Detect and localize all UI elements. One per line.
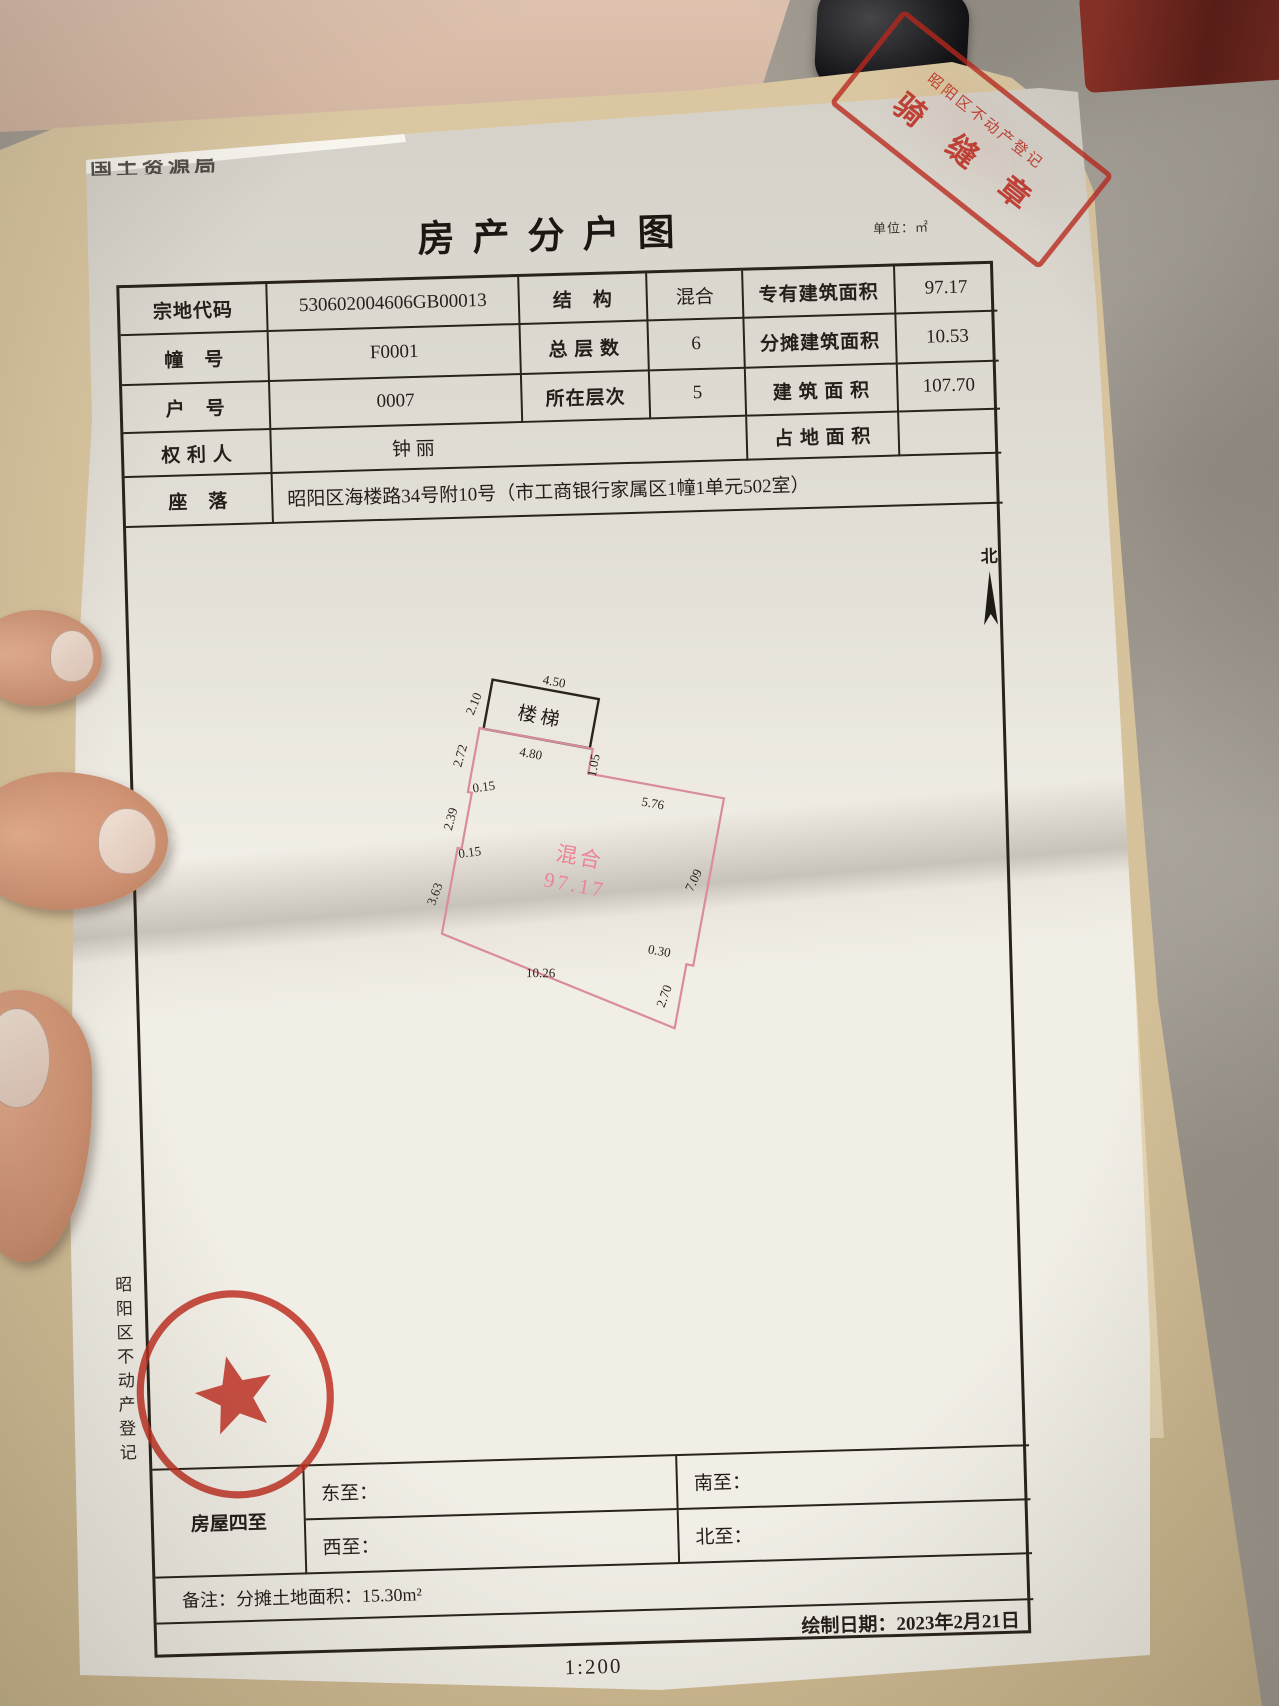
dim-jog-lower: 0.15 — [457, 843, 482, 861]
star-icon — [188, 1347, 281, 1438]
dim-right-side: 7.09 — [682, 867, 705, 894]
value-floor-level: 5 — [650, 369, 747, 420]
label-structure: 结 构 — [519, 273, 648, 325]
north-arrow-icon — [980, 571, 1002, 630]
label-land-area: 占 地 面 积 — [747, 412, 900, 460]
photo-of-property-document: 国土资源局 房产分户图 单位：㎡ 宗地代码 530602004606GB0001… — [0, 0, 1279, 1706]
label-building-area: 建 筑 面 积 — [746, 364, 899, 416]
unit-floor-plan: 楼梯 4.50 2.10 4.80 1.05 5.76 7.09 0.30 2.… — [378, 660, 769, 1070]
value-parcel-code: 530602004606GB00013 — [267, 277, 520, 332]
value-building-no: F0001 — [269, 325, 522, 382]
fingernail-2 — [98, 808, 156, 874]
dim-stair-height: 2.10 — [462, 690, 485, 717]
room-type-label: 混合 — [554, 841, 606, 873]
dim-jog-upper: 0.15 — [471, 778, 496, 796]
value-structure: 混合 — [647, 271, 744, 322]
label-unit-no: 户 号 — [122, 382, 271, 434]
dim-top-right: 5.76 — [640, 794, 666, 813]
dim-bottom: 10.26 — [526, 965, 556, 980]
clipped-header-text: 国土资源局 — [90, 157, 270, 176]
dim-stair-width: 4.50 — [542, 672, 567, 691]
dim-left-upper: 2.72 — [450, 743, 471, 769]
label-floor-level: 所在层次 — [522, 371, 651, 423]
value-shared-area: 10.53 — [896, 312, 998, 365]
value-unit-no: 0007 — [270, 375, 523, 430]
thumbnail — [0, 1008, 50, 1108]
label-exclusive-area: 专有建筑面积 — [743, 266, 896, 318]
value-land-area — [899, 410, 1001, 457]
page-title: 房产分户图 — [214, 195, 895, 268]
document-content: 国土资源局 房产分户图 单位：㎡ 宗地代码 530602004606GB0001… — [0, 0, 1279, 1706]
label-north: 北至： — [679, 1500, 1032, 1564]
value-building-area: 107.70 — [898, 362, 1000, 413]
dim-right-lower: 2.70 — [653, 983, 675, 1010]
value-exclusive-area: 97.17 — [895, 264, 997, 315]
info-table: 宗地代码 530602004606GB00013 结 构 混合 专有建筑面积 9… — [119, 264, 1002, 528]
value-total-floors: 6 — [648, 319, 745, 372]
dim-left-lower: 3.63 — [424, 881, 446, 908]
fingernail-1 — [50, 630, 94, 682]
label-shared-area: 分摊建筑面积 — [744, 314, 897, 368]
dim-step: 1.05 — [584, 753, 603, 778]
north-indicator: 北 — [965, 541, 1015, 629]
label-parcel-code: 宗地代码 — [119, 284, 268, 336]
stairs-label: 楼梯 — [516, 702, 565, 732]
north-label: 北 — [965, 541, 1014, 567]
label-south: 南至： — [677, 1446, 1030, 1510]
unit-note: 单位：㎡ — [873, 217, 930, 238]
dim-left-middle: 2.39 — [440, 806, 461, 832]
label-owner: 权 利 人 — [123, 430, 272, 478]
label-building-no: 幢 号 — [121, 332, 270, 386]
label-location: 座 落 — [125, 474, 274, 528]
dim-notch: 0.30 — [647, 941, 672, 960]
dim-top-left: 4.80 — [518, 744, 543, 763]
label-total-floors: 总 层 数 — [521, 321, 650, 375]
